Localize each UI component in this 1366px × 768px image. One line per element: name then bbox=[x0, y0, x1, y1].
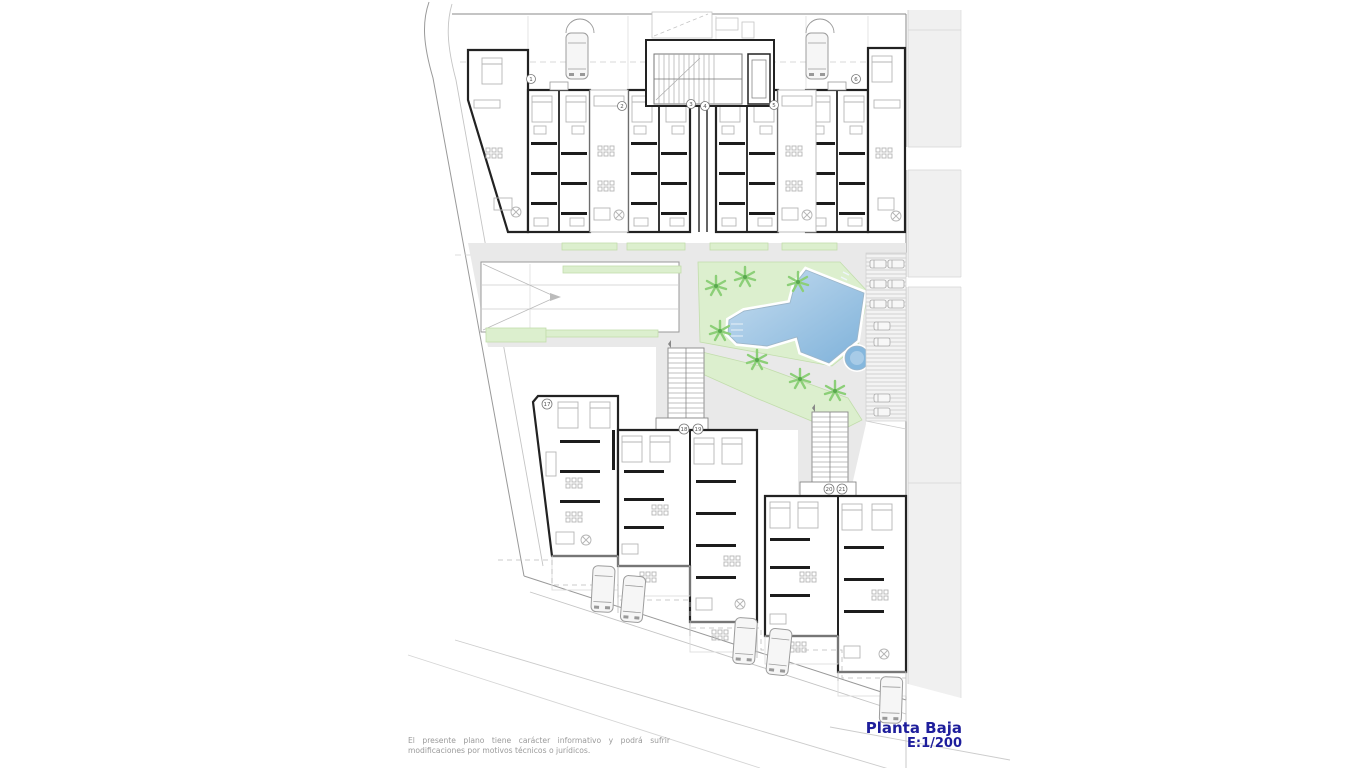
top-building-row bbox=[468, 12, 905, 232]
unit-module bbox=[628, 90, 690, 232]
unit-number-text: 4 bbox=[703, 104, 707, 110]
unit-number-text: 5 bbox=[772, 103, 776, 109]
parked-car bbox=[620, 575, 646, 623]
parked-car bbox=[766, 628, 793, 676]
unit-number-text: 20 bbox=[826, 487, 833, 493]
unit-17-block bbox=[533, 396, 618, 556]
central-corridor bbox=[699, 105, 707, 232]
unit-terrace bbox=[778, 90, 816, 232]
pedestrian-crossing bbox=[906, 277, 962, 287]
pedestrian-crossing bbox=[906, 147, 962, 170]
disclaimer-text: El presente plano tiene carácter informa… bbox=[408, 736, 670, 757]
parked-car bbox=[566, 33, 588, 79]
staircase-elevator-core bbox=[646, 12, 774, 106]
unit-number-text: 1 bbox=[529, 77, 533, 83]
road-strip bbox=[906, 10, 962, 698]
site-plan-drawing: 1234561718192021 bbox=[0, 0, 1366, 768]
parked-car bbox=[806, 33, 828, 79]
floor-plan-canvas: 1234561718192021 Planta Baja E:1/200 El … bbox=[0, 0, 1366, 768]
garage-door-swing bbox=[806, 19, 834, 33]
unit-module bbox=[716, 90, 778, 232]
unit-number-text: 3 bbox=[689, 102, 693, 108]
garage-door-swing bbox=[566, 19, 594, 33]
elevator-shaft bbox=[748, 54, 770, 104]
unit-number-text: 21 bbox=[839, 487, 846, 493]
unit-number-text: 17 bbox=[544, 402, 551, 408]
disclaimer-line-1: El presente plano tiene carácter informa… bbox=[408, 736, 670, 745]
parked-car bbox=[732, 617, 757, 664]
unit-6-living-wing bbox=[868, 48, 905, 232]
unit-1-living-wing bbox=[468, 50, 528, 232]
drawing-title-block: Planta Baja E:1/200 bbox=[866, 720, 962, 752]
unit-module bbox=[528, 90, 590, 232]
plan-scale: E:1/200 bbox=[866, 737, 962, 752]
disclaimer-line-2: modificaciones por motivos técnicos o ju… bbox=[408, 746, 590, 755]
plan-title: Planta Baja bbox=[866, 720, 962, 737]
parked-car bbox=[879, 677, 903, 724]
unit-number-text: 18 bbox=[681, 427, 688, 433]
parked-car bbox=[591, 565, 615, 612]
unit-number-text: 6 bbox=[854, 77, 858, 83]
solarium-deck bbox=[866, 253, 906, 429]
unit-number-text: 19 bbox=[695, 427, 702, 433]
unit-terrace bbox=[590, 90, 628, 232]
unit-number-text: 2 bbox=[620, 104, 624, 110]
